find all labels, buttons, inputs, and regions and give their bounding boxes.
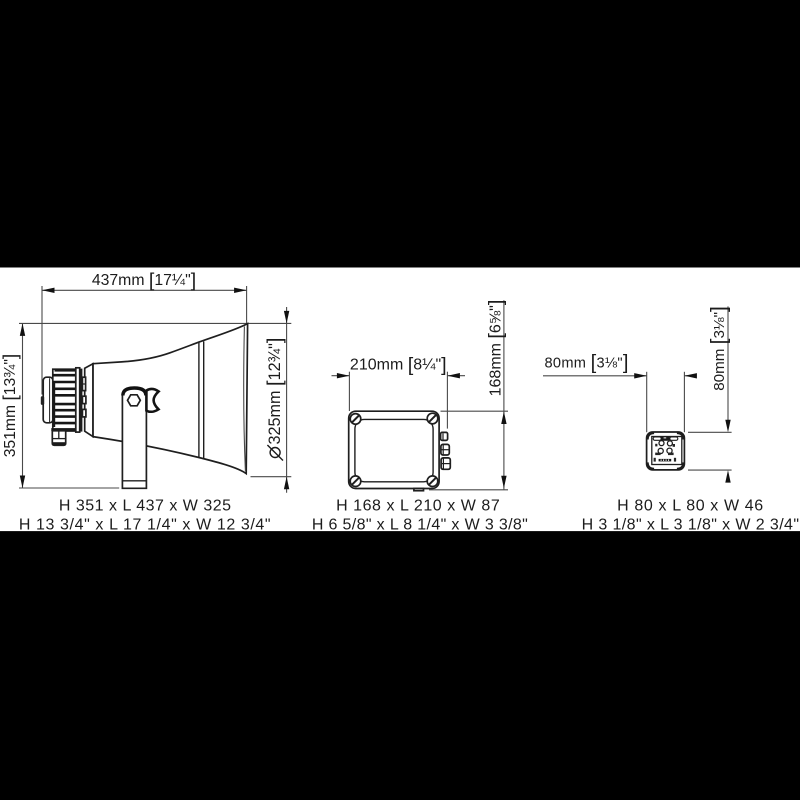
svg-text:H 168 x L 210 x W 87: H 168 x L 210 x W 87 (336, 497, 500, 514)
svg-text:H 80 x L 80 x W 46: H 80 x L 80 x W 46 (617, 497, 764, 514)
svg-text:325mm [12¾"]: 325mm [12¾"] (265, 338, 287, 445)
svg-text:351mm [13¾"]: 351mm [13¾"] (0, 354, 21, 458)
svg-text:80mm [3⅛"]: 80mm [3⅛"] (707, 306, 730, 391)
svg-text:H 13 3/4" x L 17 1/4" x W 12 3: H 13 3/4" x L 17 1/4" x W 12 3/4" (19, 517, 271, 534)
svg-text:437mm [17¼"]: 437mm [17¼"] (92, 269, 196, 291)
svg-text:210mm [8¼"]: 210mm [8¼"] (350, 354, 447, 376)
svg-text:168mm [6⅝"]: 168mm [6⅝"] (485, 300, 507, 397)
svg-text:H 351 x L 437 x W 325: H 351 x L 437 x W 325 (59, 497, 232, 514)
svg-text:80mm [3⅛"]: 80mm [3⅛"] (545, 352, 629, 374)
svg-text:H 3 1/8" x L 3 1/8" x W 2 3/4": H 3 1/8" x L 3 1/8" x W 2 3/4" (582, 517, 800, 534)
svg-text:H 6 5/8" x L 8 1/4" x W 3 3/8": H 6 5/8" x L 8 1/4" x W 3 3/8" (312, 517, 528, 534)
